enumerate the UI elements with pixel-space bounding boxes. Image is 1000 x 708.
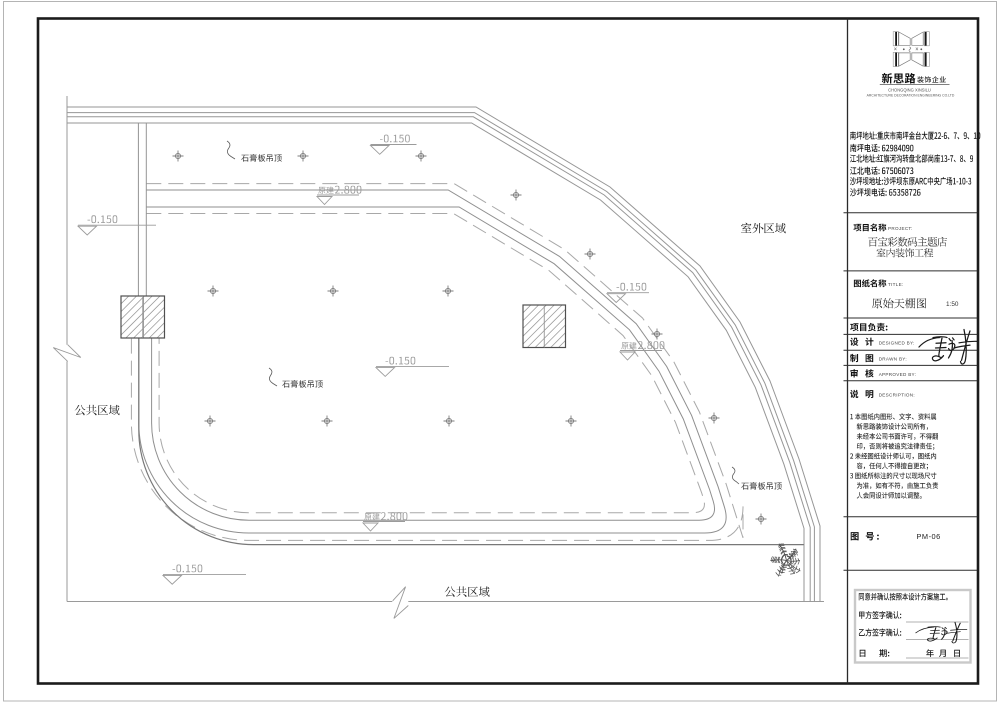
svg-text:DRAWN BY:: DRAWN BY: bbox=[879, 357, 907, 362]
svg-text:ARCHITECTURE DECORATION ENGINE: ARCHITECTURE DECORATION ENGINEERING CO.L… bbox=[867, 94, 955, 98]
svg-text:DESCRIPTION:: DESCRIPTION: bbox=[879, 393, 915, 398]
svg-text:DESIGNED BY:: DESIGNED BY: bbox=[879, 340, 915, 345]
svg-text:1:50: 1:50 bbox=[946, 301, 959, 308]
svg-text:CHONGQING XINSILU: CHONGQING XINSILU bbox=[888, 87, 931, 92]
svg-text:TITLE:: TITLE: bbox=[888, 282, 904, 287]
svg-text:PROJECT:: PROJECT: bbox=[888, 226, 913, 231]
svg-text:PM-06: PM-06 bbox=[917, 532, 941, 541]
svg-text:APPROVED BY:: APPROVED BY: bbox=[879, 372, 917, 377]
